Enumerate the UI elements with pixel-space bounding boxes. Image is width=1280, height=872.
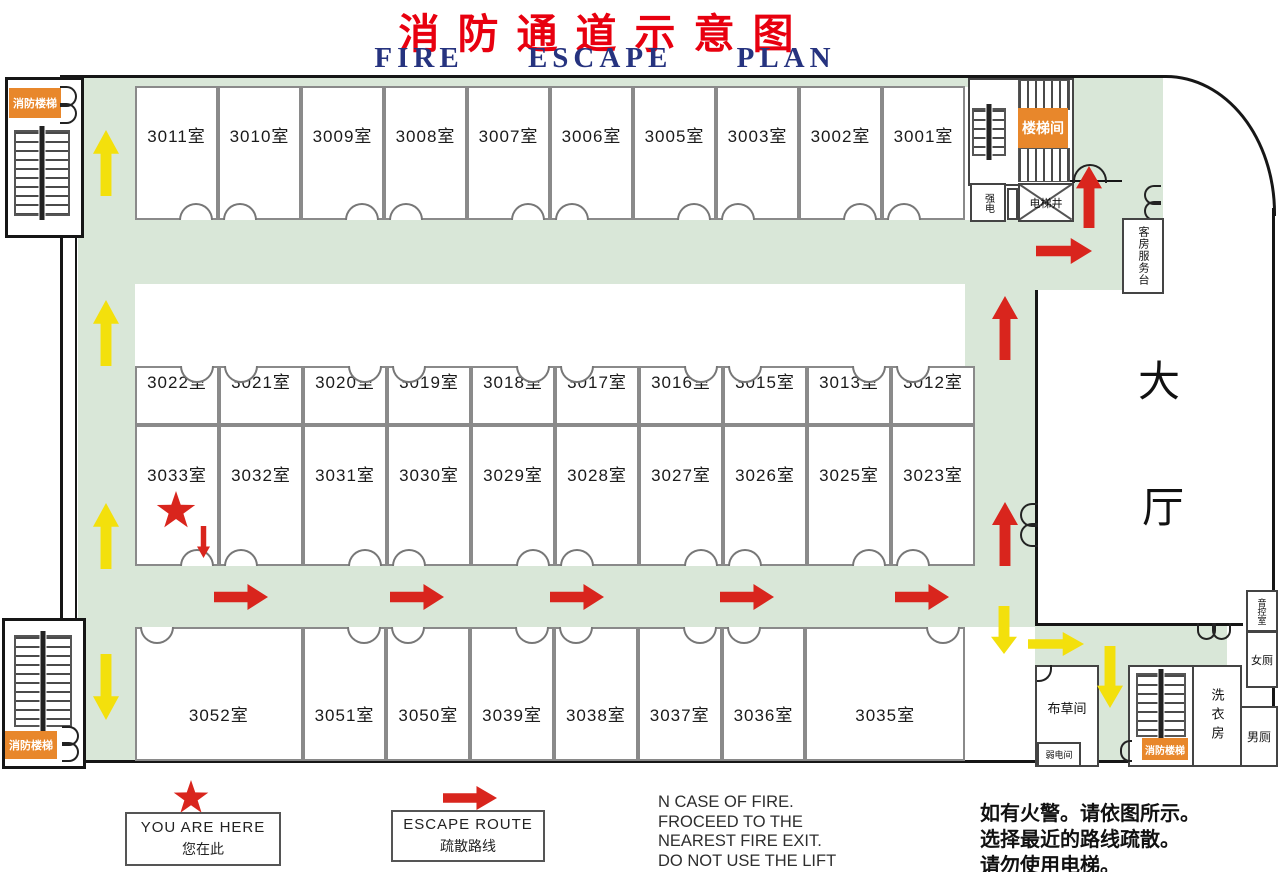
door-arc xyxy=(1120,740,1132,762)
room: 3011室 xyxy=(135,86,218,220)
stairs-icon-bottom-right xyxy=(1136,673,1186,737)
shaft-divider xyxy=(1007,188,1018,220)
stairs-icon-top-left xyxy=(14,130,70,216)
room: 3013室 xyxy=(807,366,891,425)
fire-notice-zh-line: 请勿使用电梯。 xyxy=(980,853,1200,872)
page-title-en: FIRE ESCAPE PLAN xyxy=(0,42,1210,75)
door-arc xyxy=(1020,523,1038,547)
room: 3037室 xyxy=(638,627,722,761)
you-are-here-en: YOU ARE HERE xyxy=(141,819,266,836)
room-service-desk-label: 客房服务台 xyxy=(1135,226,1151,286)
room: 3032室 xyxy=(219,425,303,566)
women-toilet: 女厕 xyxy=(1246,631,1278,688)
fire-stairs-top-left-tag: 消防楼梯 xyxy=(9,88,61,118)
fire-notice-en: N CASE OF FIRE. FROCEED TO THE NEAREST F… xyxy=(658,793,836,871)
linen-room-label: 布草间 xyxy=(1047,698,1086,717)
stairwell-tag: 楼梯间 xyxy=(1018,108,1068,148)
room: 3007室 xyxy=(467,86,550,220)
strong-power-label: 强电 xyxy=(983,193,994,213)
weak-power-label: 弱电间 xyxy=(1045,748,1072,761)
lobby: 大 厅 xyxy=(1035,290,1243,626)
stairs-icon-bottom-left xyxy=(14,635,72,727)
room: 3031室 xyxy=(303,425,387,566)
room-label: 3038室 xyxy=(566,701,626,759)
wall-curved-corner xyxy=(1163,75,1276,216)
door-arc xyxy=(559,627,593,644)
room-row-3: 3033室 3032室 3031室 3030室 3029室 3028室 3027… xyxy=(135,425,975,566)
room: 3016室 xyxy=(639,366,723,425)
fire-notice-zh-line: 选择最近的路线疏散。 xyxy=(980,827,1200,853)
room: 3008室 xyxy=(384,86,467,220)
elevator-shaft-label: 电梯井 xyxy=(1030,195,1063,211)
door-arc xyxy=(683,627,717,644)
room-label: 3051室 xyxy=(315,701,375,759)
fire-notice-en-line: FROCEED TO THE xyxy=(658,813,836,833)
room: 3027室 xyxy=(639,425,723,566)
room: 3002室 xyxy=(799,86,882,220)
room: 3003室 xyxy=(716,86,799,220)
room: 3012室 xyxy=(891,366,975,425)
room-label: 3039室 xyxy=(482,701,542,759)
door-arc xyxy=(515,627,549,644)
room: 3038室 xyxy=(554,627,638,761)
legend-you-are-here: YOU ARE HERE 您在此 xyxy=(125,812,281,866)
room: 3030室 xyxy=(387,425,471,566)
escape-route-zh: 疏散路线 xyxy=(440,836,496,856)
fire-escape-plan: 消防通道示意图 FIRE ESCAPE PLAN 大 厅 3011室 3010室… xyxy=(0,0,1280,872)
room-row-2: 3022室 3021室 3020室 3019室 3018室 3017室 3016… xyxy=(135,284,975,425)
room: 3028室 xyxy=(555,425,639,566)
room: 3021室 xyxy=(219,366,303,425)
fire-notice-en-line: DO NOT USE THE LIFT xyxy=(658,852,836,872)
room-label: 3050室 xyxy=(398,701,458,759)
wall-left-inner xyxy=(75,230,77,620)
room: 3005室 xyxy=(633,86,716,220)
room: 3015室 xyxy=(723,366,807,425)
you-are-here-zh: 您在此 xyxy=(182,839,224,859)
door-arc xyxy=(926,627,960,644)
room: 3039室 xyxy=(470,627,554,761)
door-arc xyxy=(347,627,381,644)
room: 3018室 xyxy=(471,366,555,425)
room-label: 3035室 xyxy=(855,701,915,759)
room: 3036室 xyxy=(722,627,806,761)
door-arc xyxy=(391,627,425,644)
room: 3020室 xyxy=(303,366,387,425)
room-label: 3052室 xyxy=(189,701,249,759)
room: 3051室 xyxy=(303,627,387,761)
fire-stairs-bottom-left-tag: 消防楼梯 xyxy=(5,731,57,759)
laundry-room: 洗衣房 xyxy=(1192,665,1242,767)
room: 3010室 xyxy=(218,86,301,220)
sound-control-room: 音控室 xyxy=(1246,590,1278,632)
room-label: 3037室 xyxy=(650,701,710,759)
room: 3029室 xyxy=(471,425,555,566)
door-arc xyxy=(1212,623,1231,640)
room: 3019室 xyxy=(387,366,471,425)
room: 3017室 xyxy=(555,366,639,425)
room-label: 3036室 xyxy=(734,701,794,759)
fire-notice-zh: 如有火警。请依图所示。 选择最近的路线疏散。 请勿使用电梯。 xyxy=(980,801,1200,872)
room-service-desk: 客房服务台 xyxy=(1122,218,1164,294)
room: 3052室 xyxy=(135,627,303,761)
stairs-icon-top-right xyxy=(972,108,1006,156)
stairs-stripes-top xyxy=(1018,80,1070,110)
lobby-label-1: 大 xyxy=(1138,348,1180,409)
room: 3025室 xyxy=(807,425,891,566)
room-row-1: 3011室 3010室 3009室 3008室 3007室 3006室 3005… xyxy=(135,86,965,220)
room: 3022室 xyxy=(135,366,219,425)
escape-route-en: ESCAPE ROUTE xyxy=(403,816,533,833)
room: 3023室 xyxy=(891,425,975,566)
elevator-shaft: 电梯井 xyxy=(1018,183,1074,222)
room: 3006室 xyxy=(550,86,633,220)
strong-power-room: 强电 xyxy=(970,183,1006,222)
room-row-4: 3052室 3051室 3050室 3039室 3038室 3037室 3036… xyxy=(135,627,965,761)
room: 3026室 xyxy=(723,425,807,566)
door-arc xyxy=(727,627,761,644)
room: 3050室 xyxy=(386,627,470,761)
fire-notice-en-line: N CASE OF FIRE. xyxy=(658,793,836,813)
fire-stairs-bottom-right-tag: 消防楼梯 xyxy=(1142,738,1188,760)
room: 3001室 xyxy=(882,86,965,220)
men-toilet: 男厕 xyxy=(1240,706,1278,767)
door-arc xyxy=(140,627,174,644)
women-toilet-label: 女厕 xyxy=(1251,652,1273,668)
legend-star xyxy=(173,780,209,816)
fire-notice-en-line: NEAREST FIRE EXIT. xyxy=(658,832,836,852)
room: 3035室 xyxy=(805,627,965,761)
weak-power-room: 弱电间 xyxy=(1037,742,1081,767)
men-toilet-label: 男厕 xyxy=(1247,728,1271,745)
laundry-label: 洗衣房 xyxy=(1208,688,1227,745)
stairs-stripes-bottom xyxy=(1018,148,1070,182)
fire-notice-zh-line: 如有火警。请依图所示。 xyxy=(980,801,1200,827)
sound-control-label: 音控室 xyxy=(1256,598,1269,625)
legend-escape-route: ESCAPE ROUTE 疏散路线 xyxy=(391,810,545,862)
lobby-label-2: 厅 xyxy=(1142,474,1184,535)
room: 3009室 xyxy=(301,86,384,220)
legend-arrow xyxy=(443,786,497,810)
